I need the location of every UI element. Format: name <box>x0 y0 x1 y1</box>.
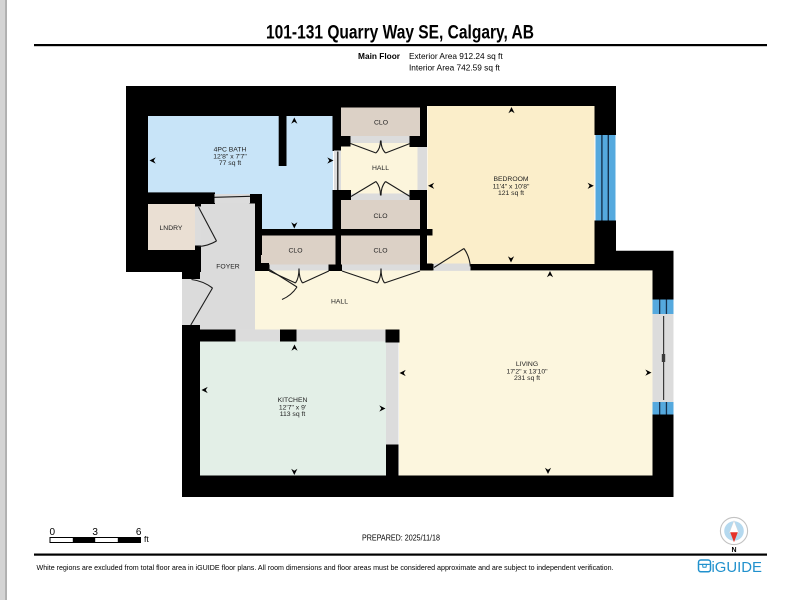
svg-text:231 sq ft: 231 sq ft <box>514 375 540 382</box>
svg-text:CLO: CLO <box>374 213 388 220</box>
svg-text:77 sq ft: 77 sq ft <box>219 160 241 167</box>
svg-text:BEDROOM: BEDROOM <box>493 176 528 183</box>
svg-text:CLO: CLO <box>374 248 388 255</box>
svg-text:0: 0 <box>50 527 56 538</box>
svg-text:LIVING: LIVING <box>516 361 538 368</box>
svg-text:Interior Area 742.59 sq ft: Interior Area 742.59 sq ft <box>409 63 501 73</box>
svg-text:CLO: CLO <box>289 248 303 255</box>
svg-text:121 sq ft: 121 sq ft <box>498 190 524 197</box>
svg-text:6: 6 <box>136 527 142 538</box>
svg-text:101-131 Quarry Way SE, Calgary: 101-131 Quarry Way SE, Calgary, AB <box>266 23 534 44</box>
svg-text:iGUIDE: iGUIDE <box>712 559 763 576</box>
svg-text:FOYER: FOYER <box>216 264 240 271</box>
svg-text:KITCHEN: KITCHEN <box>278 397 308 404</box>
svg-text:CLO: CLO <box>374 120 388 127</box>
svg-text:113 sq ft: 113 sq ft <box>280 411 306 418</box>
svg-text:Main Floor: Main Floor <box>358 51 401 61</box>
svg-text:ft: ft <box>144 534 149 544</box>
svg-text:LNDRY: LNDRY <box>160 225 183 232</box>
svg-text:3: 3 <box>92 527 98 538</box>
svg-text:HALL: HALL <box>372 165 389 172</box>
svg-text:Exterior Area 912.24 sq ft: Exterior Area 912.24 sq ft <box>409 51 503 61</box>
svg-text:HALL: HALL <box>331 299 348 306</box>
svg-text:White regions are excluded fro: White regions are excluded from total fl… <box>37 563 614 572</box>
svg-text:N: N <box>731 547 736 554</box>
svg-text:PREPARED: 2025/11/18: PREPARED: 2025/11/18 <box>362 534 440 543</box>
